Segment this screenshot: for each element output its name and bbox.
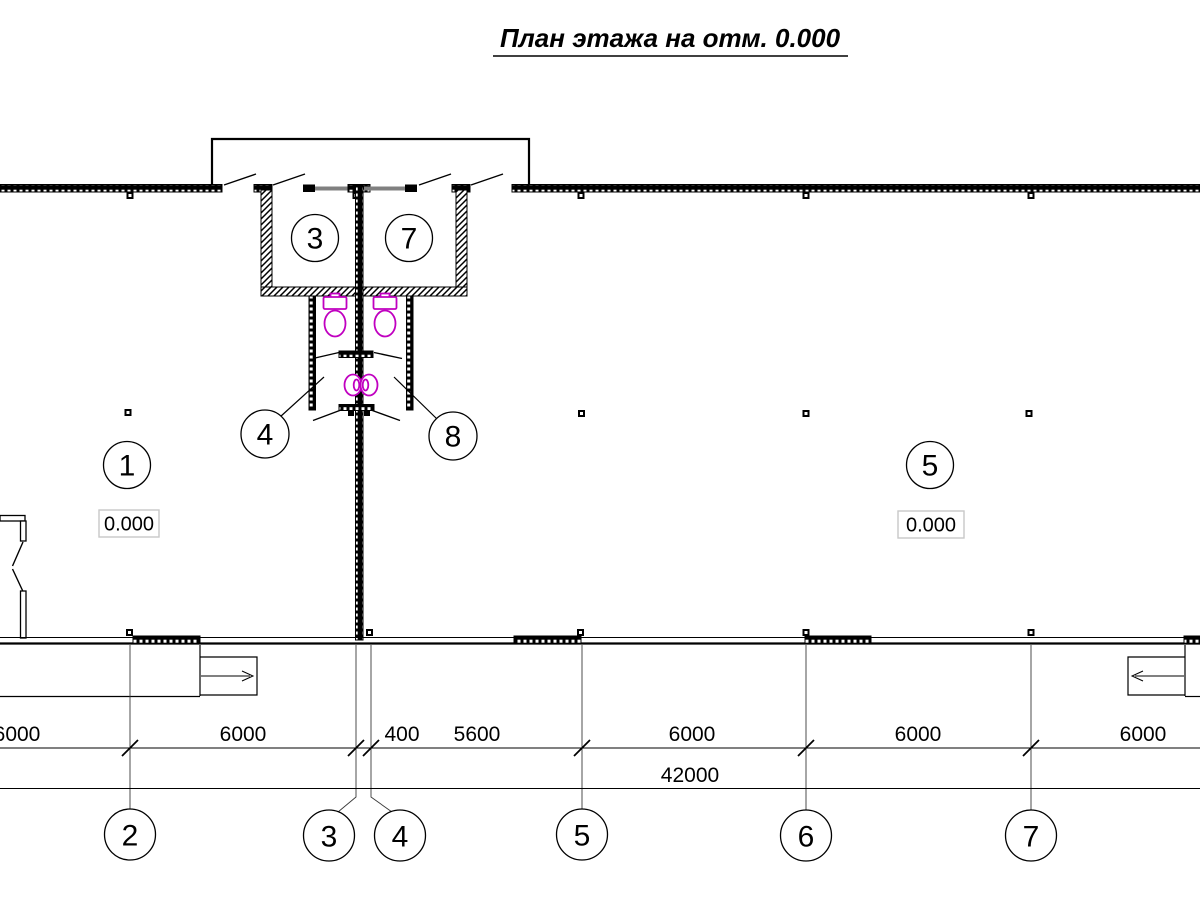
column-marker (803, 192, 810, 199)
axis-number: 7 (1023, 821, 1040, 854)
column-marker (1028, 629, 1035, 636)
axis-number: 6 (798, 821, 815, 854)
column-marker (366, 629, 373, 636)
dim-text: 6000 (220, 723, 267, 746)
window-glazing (315, 187, 353, 191)
dim-text: 6000 (0, 723, 40, 746)
top-wall-left-segment (0, 185, 222, 193)
toilet-fixture (374, 294, 397, 337)
wall-jamb (0, 516, 25, 522)
column-marker (577, 629, 584, 636)
wc-left-wall (261, 190, 272, 296)
dim-text: 400 (384, 723, 419, 746)
axis-number: 3 (321, 821, 338, 854)
room-number-stall-left: 4 (257, 419, 274, 452)
elevation-value-left: 0.000 (104, 514, 154, 536)
stub-post (348, 411, 354, 417)
wall-pier (1184, 636, 1200, 644)
room-number-wc-left: 3 (307, 223, 324, 256)
dim-text: 5600 (454, 723, 501, 746)
wall-pier (133, 636, 200, 644)
page-title: План этажа на отм. 0.000 (500, 23, 841, 53)
dim-total-text: 42000 (661, 764, 719, 787)
axis-number: 4 (392, 821, 409, 854)
dim-text: 6000 (895, 723, 942, 746)
room-number-hall-left: 1 (119, 450, 136, 483)
wall-pier (805, 636, 871, 644)
column-marker (1026, 410, 1033, 417)
stall-partition-left (309, 296, 316, 410)
top-wall-right-segment (512, 185, 1200, 193)
stall-stub-lower (339, 405, 374, 411)
column-marker (126, 629, 133, 636)
window-glazing (364, 187, 405, 191)
floor-plan-canvas: План этажа на отм. 0.000 (0, 0, 1200, 900)
drawing-title: План этажа на отм. 0.000 (493, 23, 848, 56)
column-marker (127, 192, 134, 199)
paper-background (0, 0, 1200, 900)
column-marker (578, 192, 585, 199)
stub-post (364, 411, 370, 417)
dim-text: 6000 (669, 723, 716, 746)
room-number-hall-right: 5 (922, 450, 939, 483)
axis-number: 2 (122, 820, 139, 853)
wall-pier (514, 636, 581, 644)
stall-stub-upper (339, 351, 373, 358)
dim-text: 6000 (1120, 723, 1167, 746)
elevation-value-right: 0.000 (906, 515, 956, 537)
floor-plan-page: План этажа на отм. 0.000 (0, 0, 1200, 900)
room-number-stall-right: 8 (445, 421, 462, 454)
wall-segment (21, 521, 27, 541)
wc-right-wall (456, 190, 467, 296)
column-marker (803, 629, 810, 636)
toilet-fixture (324, 294, 347, 337)
room-number-wc-right: 7 (401, 223, 418, 256)
axis-number: 5 (574, 820, 591, 853)
wc-bottom-wall (261, 287, 467, 296)
column-marker (803, 410, 810, 417)
wall-segment (21, 591, 27, 638)
column-marker (125, 409, 132, 416)
column-marker (578, 410, 585, 417)
column-marker (1028, 192, 1035, 199)
